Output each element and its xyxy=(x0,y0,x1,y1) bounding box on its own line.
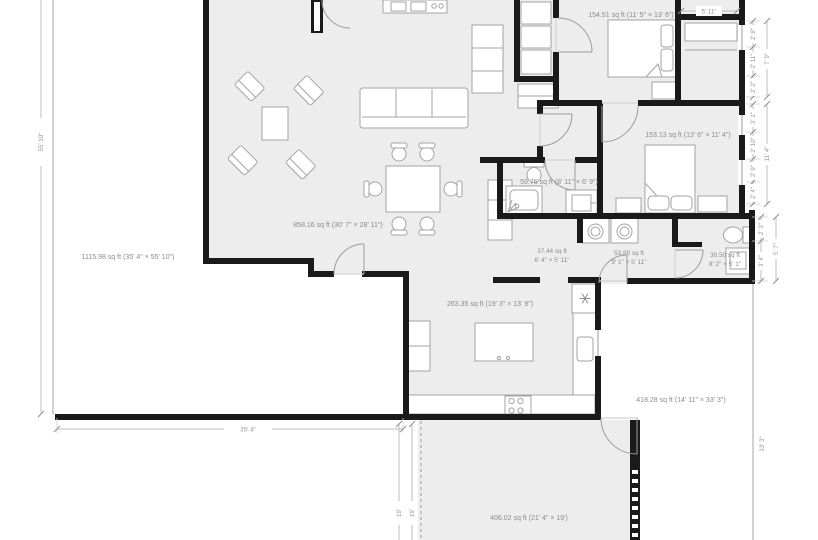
sofa xyxy=(360,88,468,128)
dim-chain-mid-0: 3' 1" xyxy=(750,112,757,124)
label-outdoor-right: 418.28 sq ft (14' 11" × 33' 3") xyxy=(636,397,725,404)
dim-chain-low-1: 3' 4" xyxy=(758,255,765,267)
dim-garage-b: 19' xyxy=(409,509,416,517)
label-hall-size: 6' 4" × 5' 11" xyxy=(534,257,569,264)
dim-garage-a: 19' xyxy=(396,509,403,517)
label-hall-area: 37.44 sq ft xyxy=(537,248,567,255)
dim-chain-low-total: 5' 7" xyxy=(773,243,780,255)
floor-plan: 55' 10" 35' 4" 19' 19' 5' 11" 2' 8" 2' 1… xyxy=(0,0,818,540)
bed-top xyxy=(608,20,677,77)
dim-bottom-width: 35' 4" xyxy=(240,427,255,434)
dining-table xyxy=(386,166,440,212)
kitchen-counter-bottom xyxy=(407,395,595,414)
vanity-main xyxy=(566,190,597,216)
dining-chair xyxy=(444,181,462,197)
fridge xyxy=(572,284,598,313)
kitchenette-counter xyxy=(383,0,447,13)
dining-chair xyxy=(391,217,407,235)
toilet-powder xyxy=(724,227,751,243)
kitchen-island xyxy=(475,323,533,361)
dim-chain-mid-total: 11' 4" xyxy=(764,147,771,162)
dim-chain-top-total: 7' 9" xyxy=(764,53,771,65)
dining-chair xyxy=(364,181,382,197)
dim-closet-top: 5' 11" xyxy=(702,9,717,16)
label-kitchen: 263.35 sq ft (19' 3" × 13' 9") xyxy=(447,301,533,308)
dim-chain-low-0: 2' 3" xyxy=(758,223,765,235)
shower xyxy=(506,186,542,214)
dining-chair xyxy=(419,217,435,235)
hall-closet-shelves xyxy=(521,2,551,74)
label-laundry-size: 9' 1" × 5' 11" xyxy=(611,259,646,266)
dryer xyxy=(611,218,638,243)
nightstand-left xyxy=(616,198,641,213)
dim-chain-mid-2: 2' 9" xyxy=(750,165,757,177)
dining-chair xyxy=(391,143,407,161)
dim-left-height: 55' 10" xyxy=(38,133,45,152)
label-living: 858.16 sq ft (30' 7" × 28' 11") xyxy=(293,222,382,229)
garage-door-wall xyxy=(630,468,640,540)
bed-right xyxy=(645,145,695,213)
dim-chain-top-1: 2' 11" xyxy=(750,54,757,69)
label-powder-area: 30.50 sq ft xyxy=(710,252,740,259)
dresser-top xyxy=(652,82,677,99)
label-bedroom-right: 153.13 sq ft (13' 6" × 11' 4") xyxy=(645,132,731,139)
dim-chain-top-0: 2' 8" xyxy=(750,28,757,40)
dim-chain-mid-3: 2' 4" xyxy=(750,187,757,199)
floor-plan-canvas: 55' 10" 35' 4" 19' 19' 5' 11" 2' 8" 2' 1… xyxy=(0,0,818,540)
label-outdoor-left: 1115.98 sq ft (35' 4" × 55' 10") xyxy=(82,254,175,261)
dim-right-height: 33' 3" xyxy=(759,436,766,451)
kitchen-counter-right xyxy=(573,313,597,395)
dim-chain-top-2: 2' 2" xyxy=(750,81,757,93)
pantry-cabinet xyxy=(408,321,430,371)
kitchen-sink xyxy=(577,337,593,361)
label-garage: 406.02 sq ft (21' 4" × 19') xyxy=(490,515,568,522)
coffee-table xyxy=(262,107,288,140)
garage-floor xyxy=(418,420,637,540)
nightstand-right xyxy=(698,196,727,212)
label-laundry-area: 53.89 sq ft xyxy=(614,250,644,257)
dining-chair xyxy=(419,143,435,161)
label-bathroom: 59.76 sq ft (8' 11" × 6' 9") xyxy=(520,179,598,186)
bookshelf xyxy=(472,25,503,93)
label-powder-size: 8' 2" × 5' 1" xyxy=(709,261,741,268)
washer xyxy=(582,218,609,243)
label-bedroom-top: 154.51 sq ft (11' 5" × 13' 6") xyxy=(588,12,674,19)
dim-chain-mid-1: 2' 10" xyxy=(750,137,757,152)
